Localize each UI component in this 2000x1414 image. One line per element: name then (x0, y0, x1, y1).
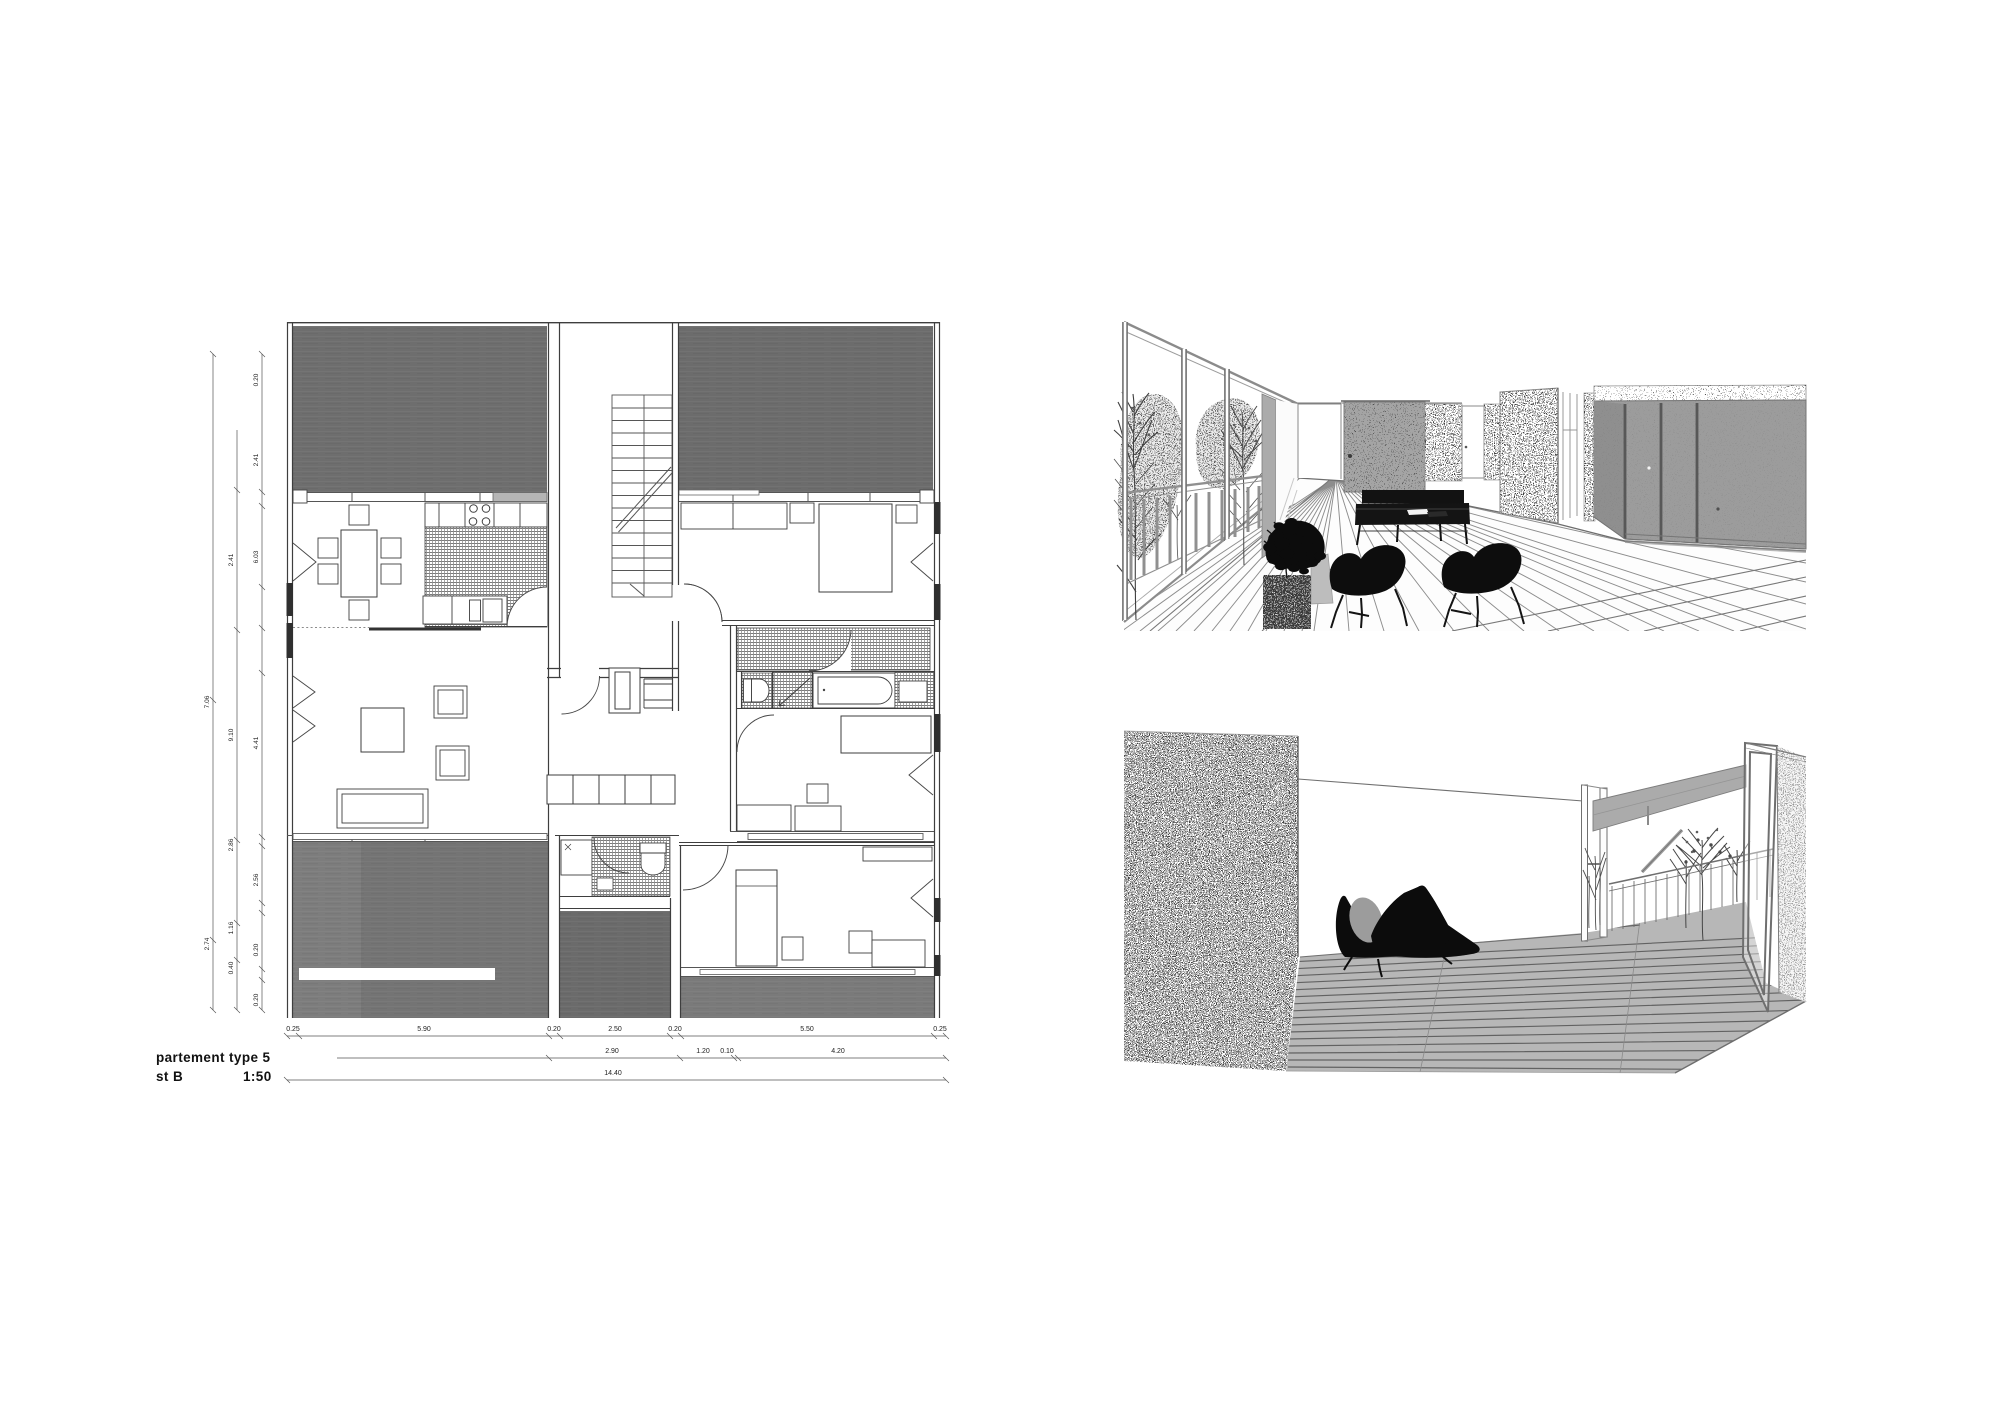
svg-text:2.41: 2.41 (253, 453, 260, 466)
svg-text:2.56: 2.56 (253, 873, 260, 886)
svg-text:0.25: 0.25 (286, 1026, 300, 1033)
svg-text:9.10: 9.10 (228, 728, 235, 741)
svg-text:14.40: 14.40 (604, 1070, 622, 1077)
svg-text:0.20: 0.20 (253, 373, 260, 386)
svg-text:partement type 5: partement type 5 (156, 1050, 271, 1065)
svg-text:2.41: 2.41 (228, 553, 235, 566)
svg-text:5.90: 5.90 (417, 1026, 431, 1033)
svg-text:st B: st B (156, 1069, 183, 1084)
svg-text:0.20: 0.20 (253, 993, 260, 1006)
svg-text:1:50: 1:50 (243, 1069, 272, 1084)
svg-text:4.20: 4.20 (831, 1048, 845, 1055)
svg-text:0.20: 0.20 (668, 1026, 682, 1033)
svg-text:0.40: 0.40 (228, 961, 235, 974)
svg-text:0.20: 0.20 (253, 943, 260, 956)
svg-text:0.25: 0.25 (933, 1026, 947, 1033)
svg-text:4.41: 4.41 (253, 736, 260, 749)
svg-text:6.03: 6.03 (253, 550, 260, 563)
svg-text:2.50: 2.50 (608, 1026, 622, 1033)
svg-text:0.20: 0.20 (547, 1026, 561, 1033)
svg-text:0.10: 0.10 (720, 1048, 734, 1055)
svg-text:1.20: 1.20 (696, 1048, 710, 1055)
svg-text:7.06: 7.06 (204, 695, 211, 708)
svg-text:5.50: 5.50 (800, 1026, 814, 1033)
svg-text:2.90: 2.90 (605, 1048, 619, 1055)
svg-text:2.74: 2.74 (204, 937, 211, 950)
svg-text:2.86: 2.86 (228, 838, 235, 851)
svg-text:1.16: 1.16 (228, 921, 235, 934)
